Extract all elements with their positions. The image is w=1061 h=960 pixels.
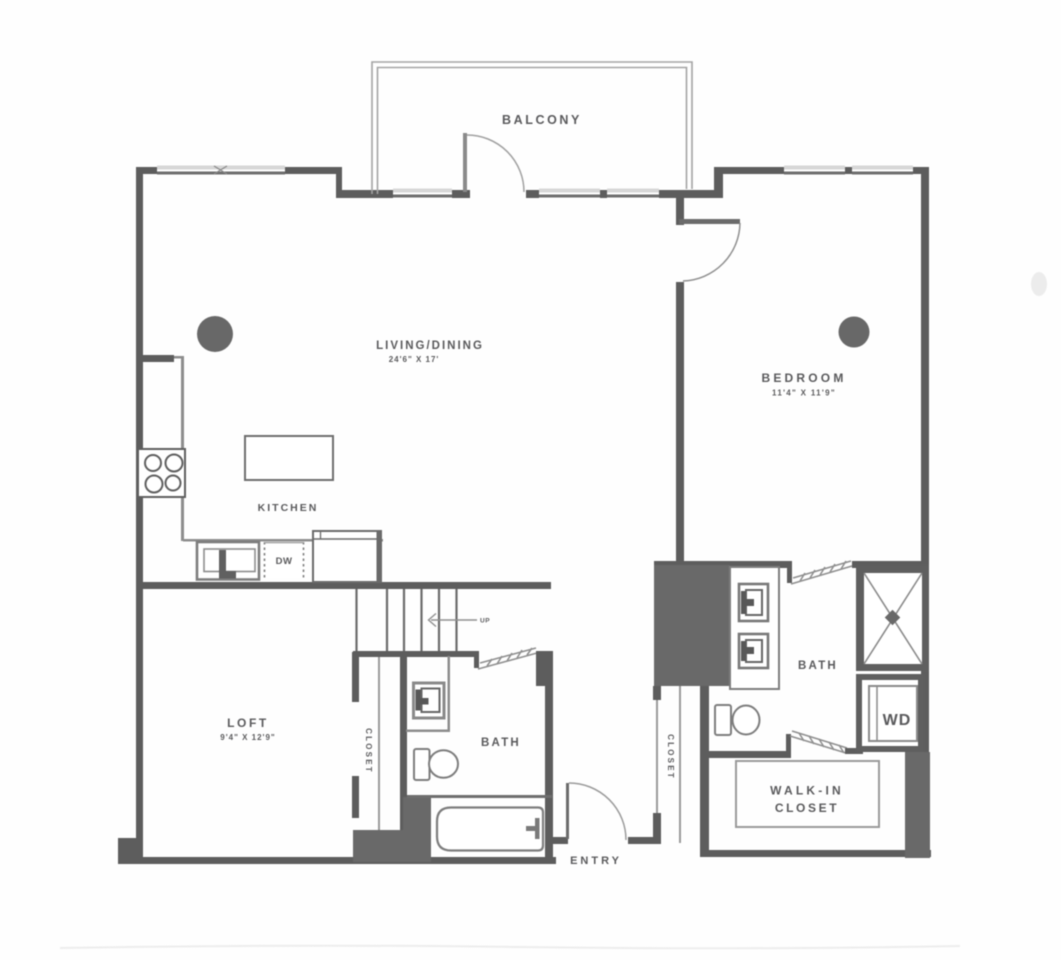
svg-text:LOFT: LOFT [227,716,269,730]
svg-text:KITCHEN: KITCHEN [258,502,319,514]
svg-text:BEDROOM: BEDROOM [761,371,846,385]
svg-text:11'4" X 11'9": 11'4" X 11'9" [772,389,836,398]
svg-text:WD: WD [883,712,912,729]
svg-text:UP: UP [480,618,490,625]
svg-text:BATH: BATH [481,737,521,749]
svg-text:CLOSET: CLOSET [364,728,373,774]
svg-text:BALCONY: BALCONY [502,113,582,127]
svg-text:LIVING/DINING: LIVING/DINING [376,340,484,352]
svg-text:CLOSET: CLOSET [775,801,839,815]
svg-text:24'6" X 17': 24'6" X 17' [389,355,440,364]
svg-text:9'4" X 12'9": 9'4" X 12'9" [220,733,275,742]
svg-text:WALK-IN: WALK-IN [770,784,844,798]
svg-text:ENTRY: ENTRY [570,855,622,867]
svg-text:BATH: BATH [798,660,838,672]
svg-text:DW: DW [276,556,293,567]
svg-text:CLOSET: CLOSET [666,734,675,780]
